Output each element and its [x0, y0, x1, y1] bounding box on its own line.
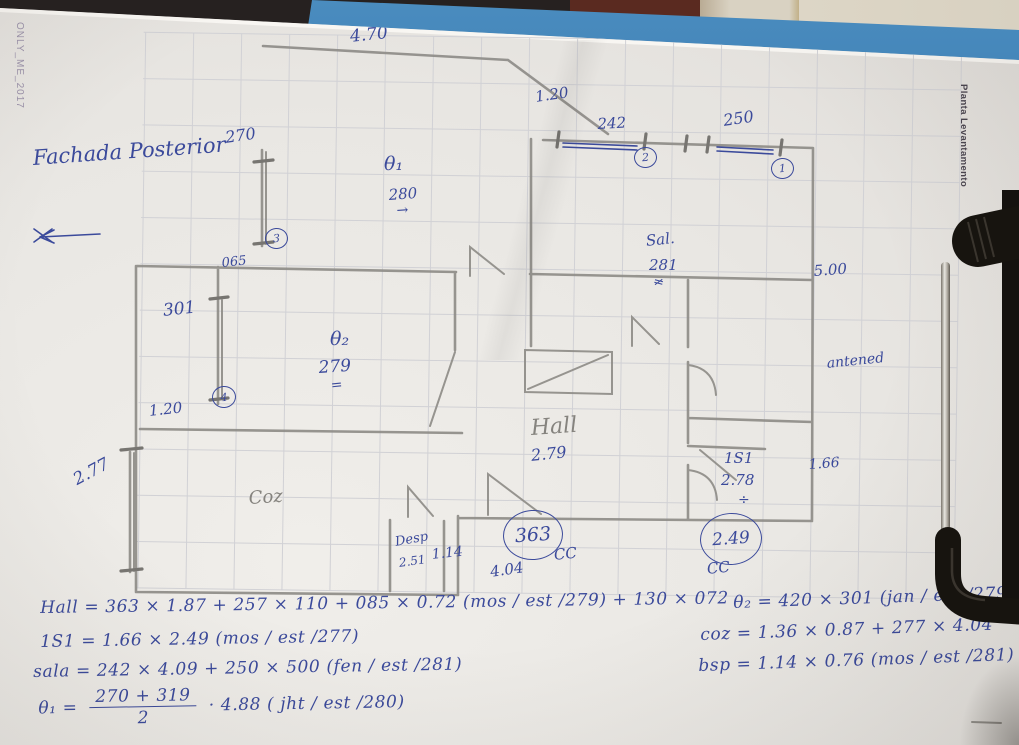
pencil-window-ticks [121, 132, 782, 571]
arrow-280: → [396, 202, 409, 219]
formula-theta1-fraction: 270 + 319 2 [89, 685, 197, 729]
dim-065: 065 [221, 253, 247, 271]
formula-theta1-rhs: · 4.88 ( jht / est /280) [209, 692, 405, 715]
fraction-numerator: 270 + 319 [89, 685, 197, 708]
label-theta2: θ₂ [330, 328, 349, 350]
dim-278: 2.78 [721, 471, 754, 489]
mark-divide: ÷ [738, 492, 750, 508]
dim-280: 280 [388, 184, 418, 204]
direction-arrow [34, 229, 100, 243]
dim-279-theta2: 279 [318, 356, 352, 378]
label-theta1: θ₁ [384, 153, 403, 175]
dim-166: 1.66 [808, 455, 840, 473]
mark-279: = [330, 377, 343, 394]
dim-120-left: 1.20 [148, 399, 183, 420]
dim-301: 301 [162, 298, 196, 321]
dim-279-hall: 2.79 [530, 442, 567, 465]
dim-114: 1.14 [431, 544, 464, 563]
corner-shadow [959, 655, 1019, 745]
dim-500: 5.00 [813, 260, 848, 280]
dim-242: 242 [597, 114, 627, 133]
paper-sheet: 4.702701.20242250θ₁280→Sal.281≠5.00anten… [0, 0, 1019, 745]
dim-281: 281 [649, 256, 678, 274]
margin-watermark: ONLY_ME_2017 [14, 22, 25, 109]
photo-stage: 4.702701.20242250θ₁280→Sal.281≠5.00anten… [0, 0, 1019, 745]
fraction-denominator: 2 [89, 706, 197, 729]
room-sala: Sal. [645, 229, 676, 250]
formula-theta1: θ₁ = 270 + 319 2 · 4.88 ( jht / est /280… [38, 682, 405, 730]
sheet-title-vertical: Planta Levantamento [958, 84, 969, 187]
formula-theta1-lhs: θ₁ = [38, 698, 77, 719]
room-1s1: 1S1 [724, 449, 753, 467]
room-hall: Hall [530, 413, 578, 441]
room-coz: Coz [248, 486, 283, 509]
